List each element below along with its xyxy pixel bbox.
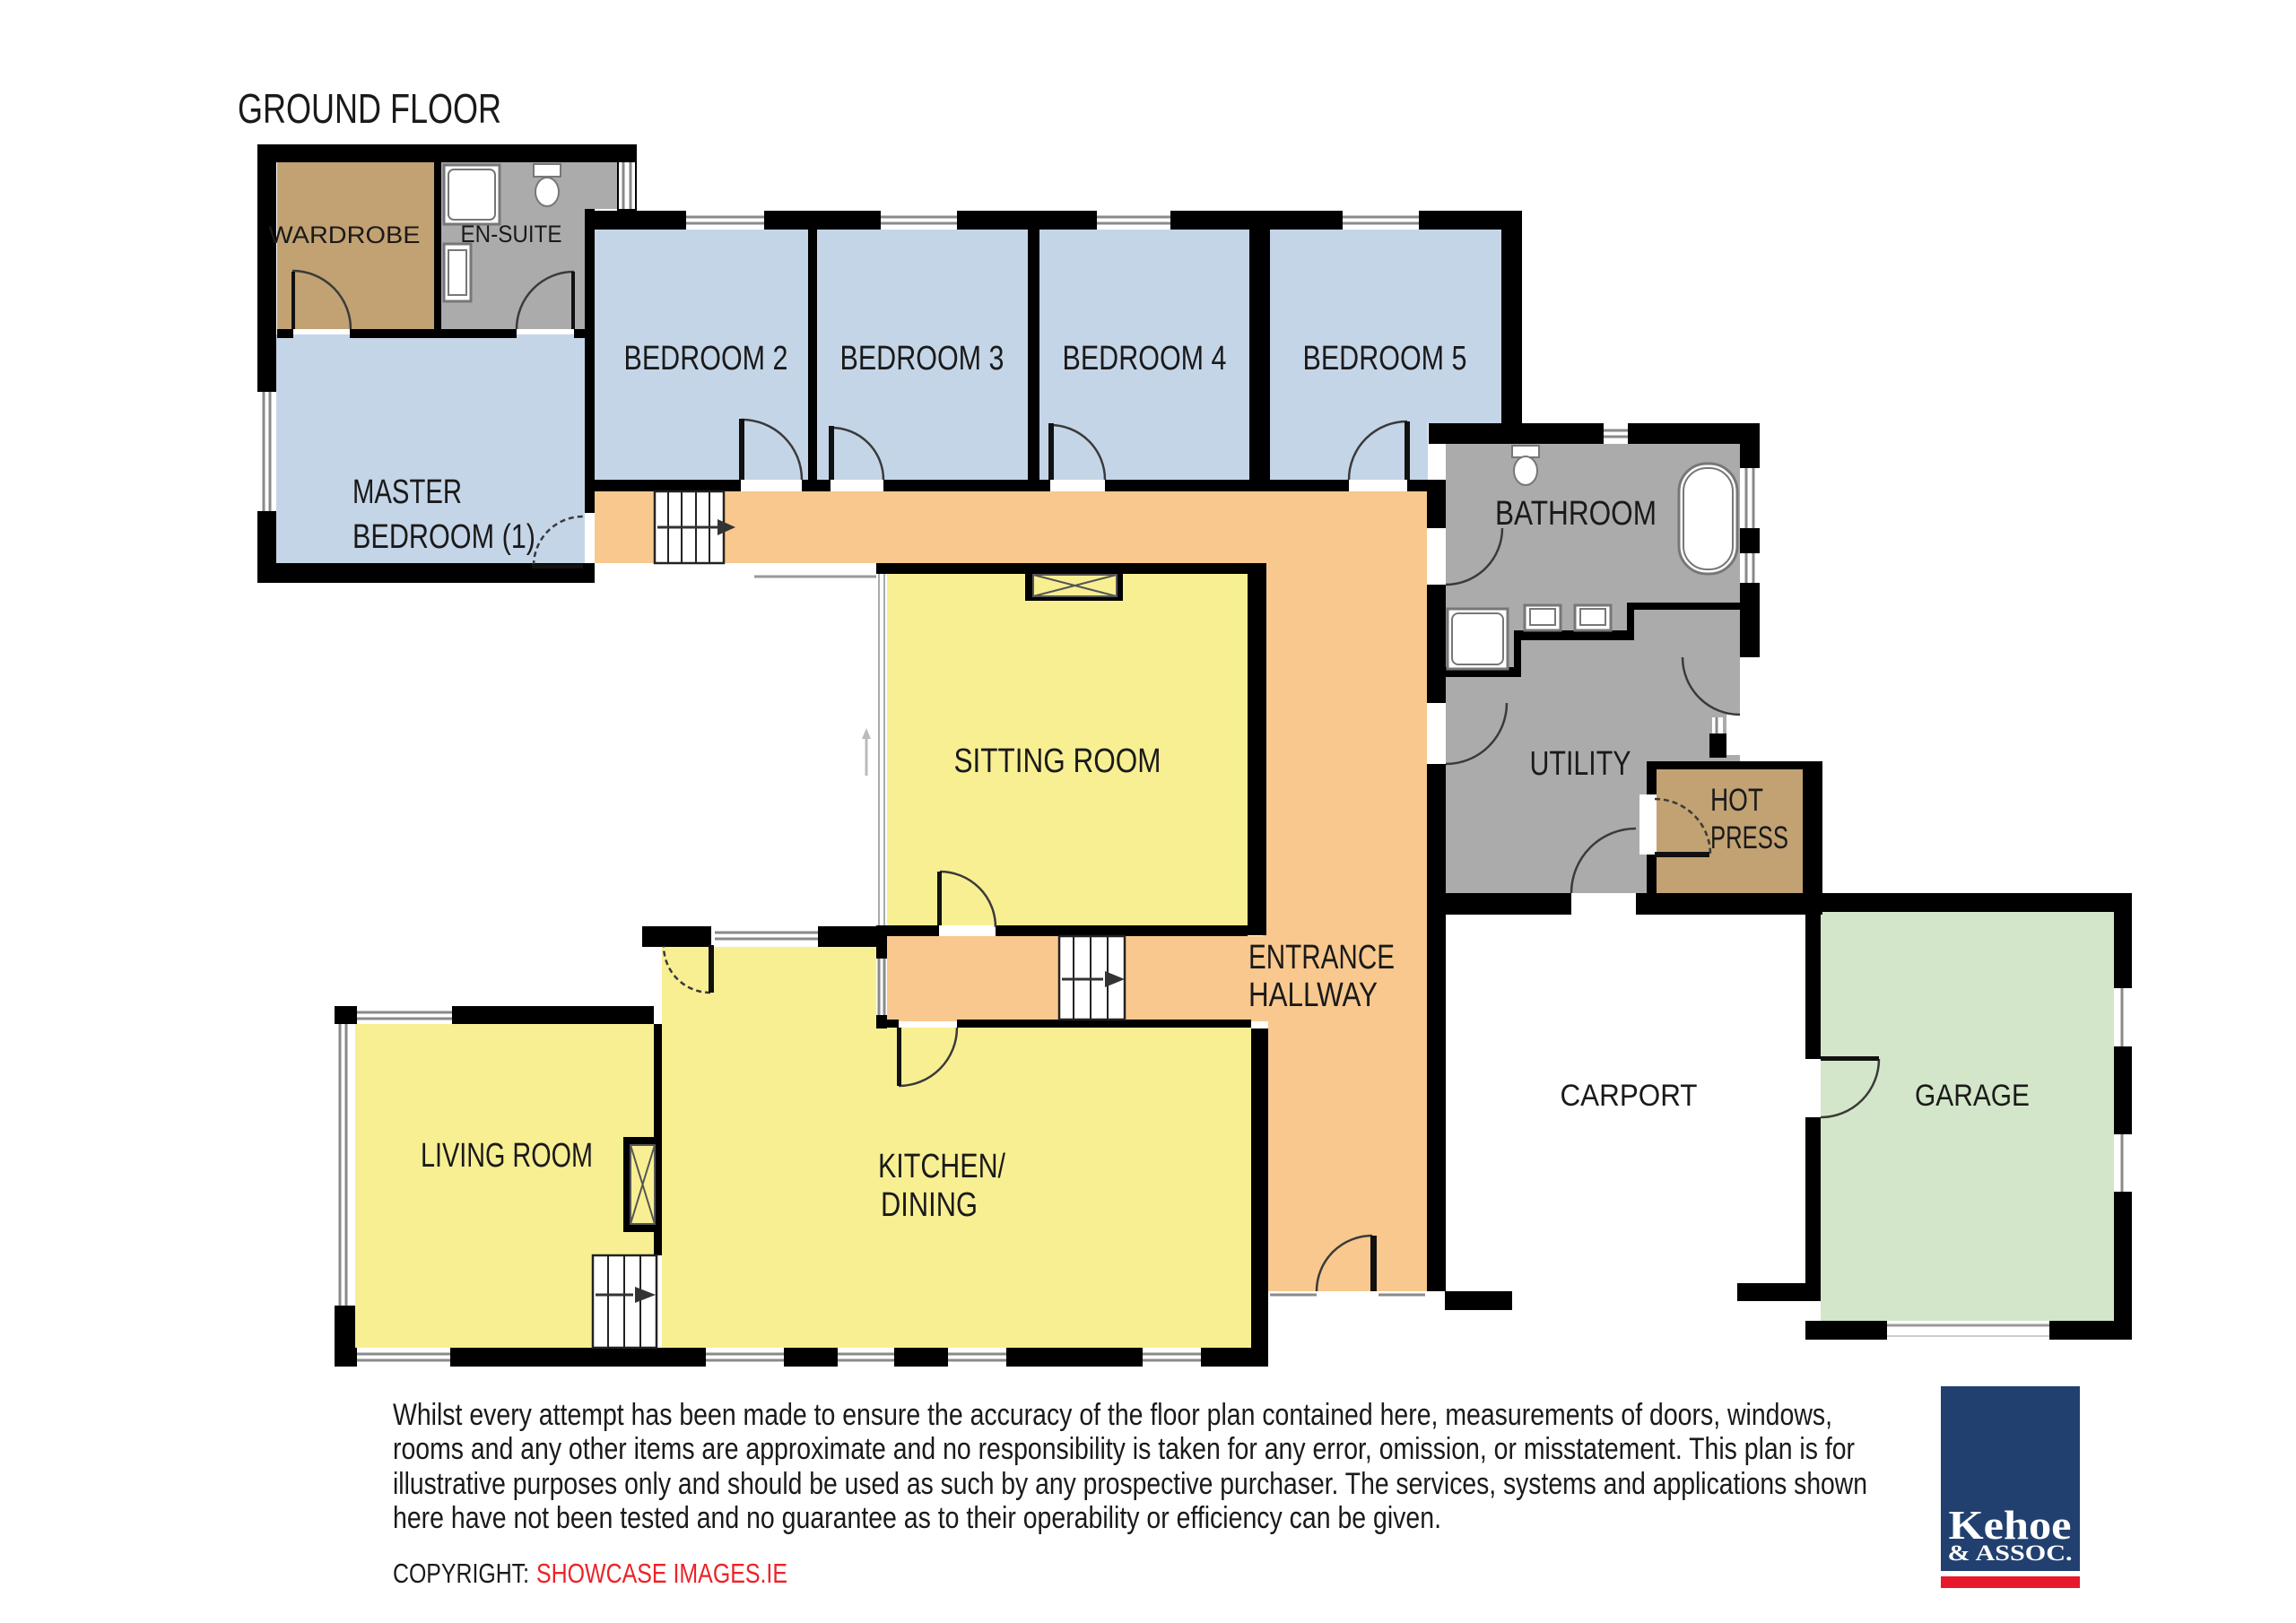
svg-text:BEDROOM 3: BEDROOM 3 — [840, 340, 1004, 378]
svg-text:BEDROOM 5: BEDROOM 5 — [1303, 340, 1467, 378]
svg-text:LIVING ROOM: LIVING ROOM — [421, 1137, 593, 1175]
svg-text:Whilst every attempt has been: Whilst every attempt has been made to en… — [393, 1398, 1832, 1432]
svg-text:BEDROOM 4: BEDROOM 4 — [1063, 340, 1227, 378]
svg-text:SHOWCASE IMAGES.IE: SHOWCASE IMAGES.IE — [536, 1558, 787, 1589]
svg-text:EN-SUITE: EN-SUITE — [461, 221, 562, 247]
svg-text:here have not been tested and: here have not been tested and no guarant… — [393, 1501, 1441, 1535]
svg-text:PRESS: PRESS — [1710, 820, 1788, 855]
svg-text:WARDROBE: WARDROBE — [269, 221, 421, 248]
svg-text:BATHROOM: BATHROOM — [1495, 495, 1657, 533]
svg-text:MASTER: MASTER — [352, 473, 462, 511]
svg-text:DINING: DINING — [881, 1186, 978, 1224]
svg-text:BEDROOM 2: BEDROOM 2 — [624, 340, 788, 378]
svg-text:illustrative purposes only and: illustrative purposes only and should be… — [393, 1467, 1867, 1501]
svg-text:GARAGE: GARAGE — [1915, 1079, 2030, 1113]
svg-text:BEDROOM (1): BEDROOM (1) — [352, 518, 535, 556]
svg-text:GROUND FLOOR: GROUND FLOOR — [238, 85, 501, 132]
svg-text:rooms and any other items are: rooms and any other items are approximat… — [393, 1432, 1855, 1466]
svg-text:UTILITY: UTILITY — [1530, 745, 1631, 783]
svg-text:COPYRIGHT:: COPYRIGHT: — [393, 1558, 529, 1589]
svg-text:& ASSOC.: & ASSOC. — [1948, 1541, 2073, 1566]
svg-text:KITCHEN/: KITCHEN/ — [878, 1148, 1005, 1185]
svg-text:CARPORT: CARPORT — [1561, 1079, 1698, 1113]
svg-text:HALLWAY: HALLWAY — [1248, 976, 1378, 1014]
svg-text:SITTING ROOM: SITTING ROOM — [954, 742, 1161, 780]
svg-text:HOT: HOT — [1710, 783, 1763, 818]
svg-text:ENTRANCE: ENTRANCE — [1248, 939, 1395, 976]
